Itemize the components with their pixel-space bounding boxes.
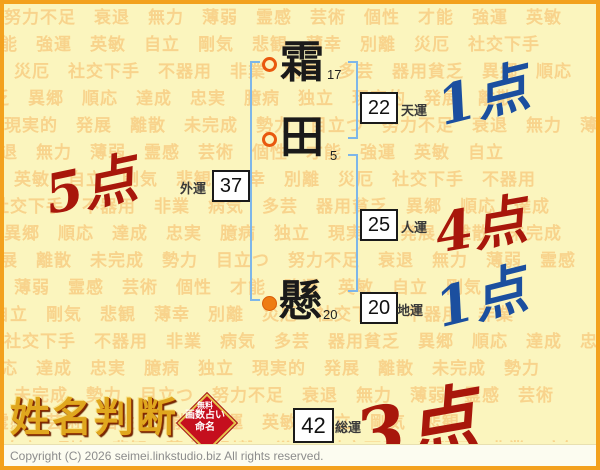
gaiun-value-box: 37 [212, 170, 250, 202]
name-char-3: 懸 [278, 280, 322, 324]
name-char-1: 霜 [280, 41, 324, 85]
soun-value-box: 42 [293, 408, 334, 443]
site-logo: 姓名判断 [10, 396, 178, 440]
tenun-value-box: 22 [360, 92, 398, 124]
chiun-value-box: 20 [360, 292, 398, 324]
stamp-line2: 画数占い [178, 410, 232, 422]
jinun-bracket [348, 154, 358, 292]
stamp-text: 無料 画数占い 命名 [178, 401, 232, 433]
watermark-row: 順応 達成 忠実 臆病 独立 現実的 発展 離散 未完成 勢力 [4, 355, 600, 382]
copyright-bar: Copyright (C) 2026 seimei.linkstudio.biz… [4, 444, 596, 467]
gaiun-label: 外運 [180, 178, 206, 197]
surname-char1-marker-icon [262, 57, 277, 72]
tenun-bracket [348, 61, 358, 139]
given-char-marker-icon [262, 296, 277, 311]
tenun-label: 天運 [401, 100, 427, 119]
surname-char2-marker-icon [262, 132, 277, 147]
chiun-label: 地運 [397, 300, 423, 319]
stroke-count-3: 20 [323, 307, 337, 322]
watermark-row: 社交下手 不器用 非業 病気 多芸 器用貧乏 異郷 順応 達成 忠実 [4, 328, 600, 355]
stamp-line3: 命名 [178, 422, 232, 434]
gaiun-bracket [250, 61, 260, 301]
stroke-count-1: 17 [327, 67, 341, 82]
stamp-line1: 無料 [178, 401, 232, 410]
copyright-text: Copyright (C) 2026 seimei.linkstudio.biz… [4, 449, 323, 463]
stroke-count-2: 5 [330, 148, 337, 163]
name-char-2: 田 [280, 116, 324, 160]
name-fortune-chart: 努力不足 衰退 無力 薄弱 霊感 芸術 個性 才能 強運 英敏才能 強運 英敏 … [0, 0, 600, 470]
watermark-row: 努力不足 衰退 無力 薄弱 霊感 芸術 個性 才能 強運 英敏 [4, 4, 600, 31]
jinun-value-box: 25 [360, 209, 398, 241]
jinun-label: 人運 [401, 217, 427, 236]
free-naming-stamp-icon: 無料 画数占い 命名 [178, 394, 232, 448]
